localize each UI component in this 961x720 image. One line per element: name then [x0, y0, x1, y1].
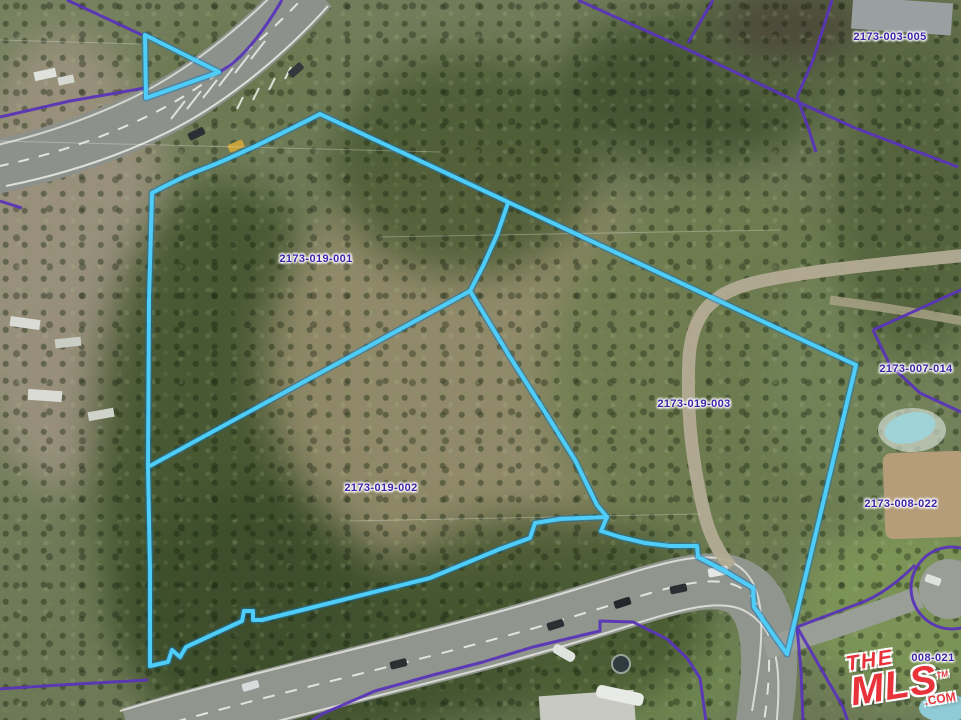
parcel-label-2173-007-014: 2173-007-014 — [879, 363, 952, 375]
the-mls-watermark-logo: THE MLSTM .COM — [845, 639, 953, 719]
lot-division-line-east — [470, 291, 607, 517]
parcel-line — [67, 0, 142, 35]
mls-logo-tm: TM — [936, 669, 949, 680]
parked-truck-2 — [57, 74, 74, 85]
house-right — [883, 451, 961, 540]
parcel-line — [797, 0, 832, 97]
road-lower — [120, 557, 778, 720]
round-pool — [612, 655, 630, 673]
trailer-4 — [88, 408, 115, 421]
parcel-label-2173-019-002: 2173-019-002 — [344, 482, 417, 494]
parcel-label-2173-003-005: 2173-003-005 — [853, 31, 926, 43]
trailer-2 — [55, 337, 82, 349]
parcel-label-2173-019-003: 2173-019-003 — [657, 398, 730, 410]
parcel-line — [0, 680, 148, 689]
trailer-3 — [28, 389, 63, 402]
parked-truck-1 — [33, 68, 56, 81]
parcel-label-2173-019-001: 2173-019-001 — [279, 253, 352, 265]
aerial-parcel-map: 2173-003-005 2173-019-001 2173-019-002 2… — [0, 0, 961, 720]
parcel-label-2173-008-022: 2173-008-022 — [864, 498, 937, 510]
parcel-line — [688, 0, 713, 43]
trailer-1 — [9, 316, 40, 330]
lot-division-line-west — [148, 291, 470, 467]
map-overlay-svg — [0, 0, 961, 720]
parcel-line — [0, 201, 22, 208]
